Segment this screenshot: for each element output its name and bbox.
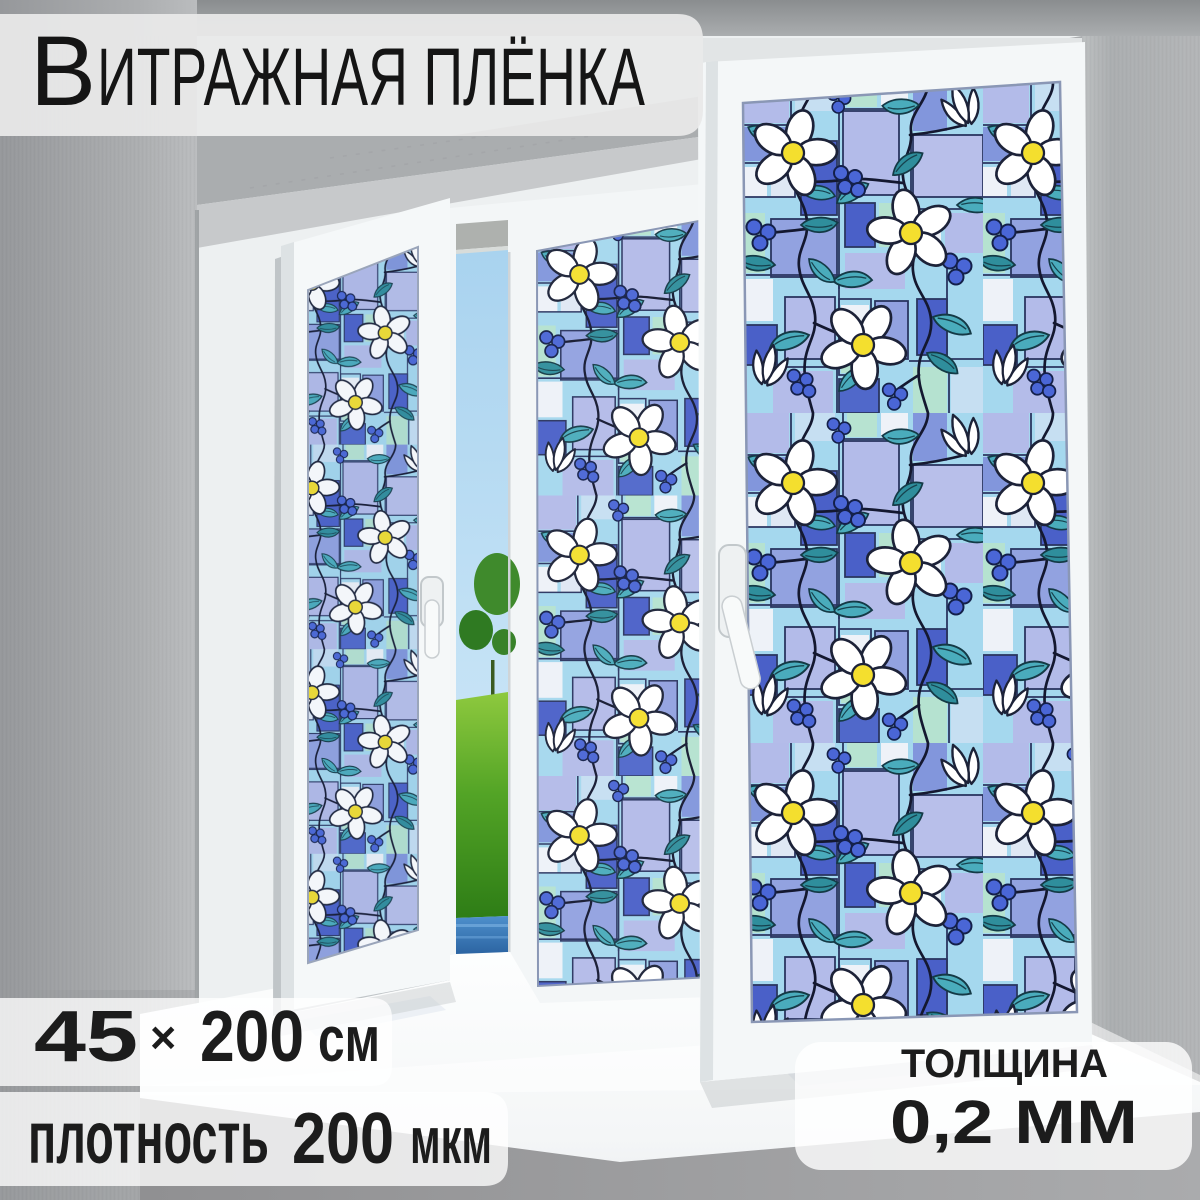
svg-text:ИТРАЖНАЯ ПЛЁНКА: ИТРАЖНАЯ ПЛЁНКА bbox=[97, 32, 645, 123]
svg-text:см: см bbox=[318, 1003, 380, 1075]
svg-text:200: 200 bbox=[200, 997, 304, 1077]
svg-text:ТОЛЩИНА: ТОЛЩИНА bbox=[901, 1042, 1108, 1086]
svg-text:мкм: мкм bbox=[410, 1103, 492, 1177]
svg-text:45: 45 bbox=[34, 997, 138, 1077]
svg-text:плотность: плотность bbox=[28, 1096, 269, 1179]
svg-text:×: × bbox=[150, 1012, 176, 1063]
svg-text:200: 200 bbox=[292, 1099, 394, 1179]
svg-text:В: В bbox=[30, 15, 96, 126]
svg-text:0,2 ММ: 0,2 ММ bbox=[890, 1088, 1138, 1156]
